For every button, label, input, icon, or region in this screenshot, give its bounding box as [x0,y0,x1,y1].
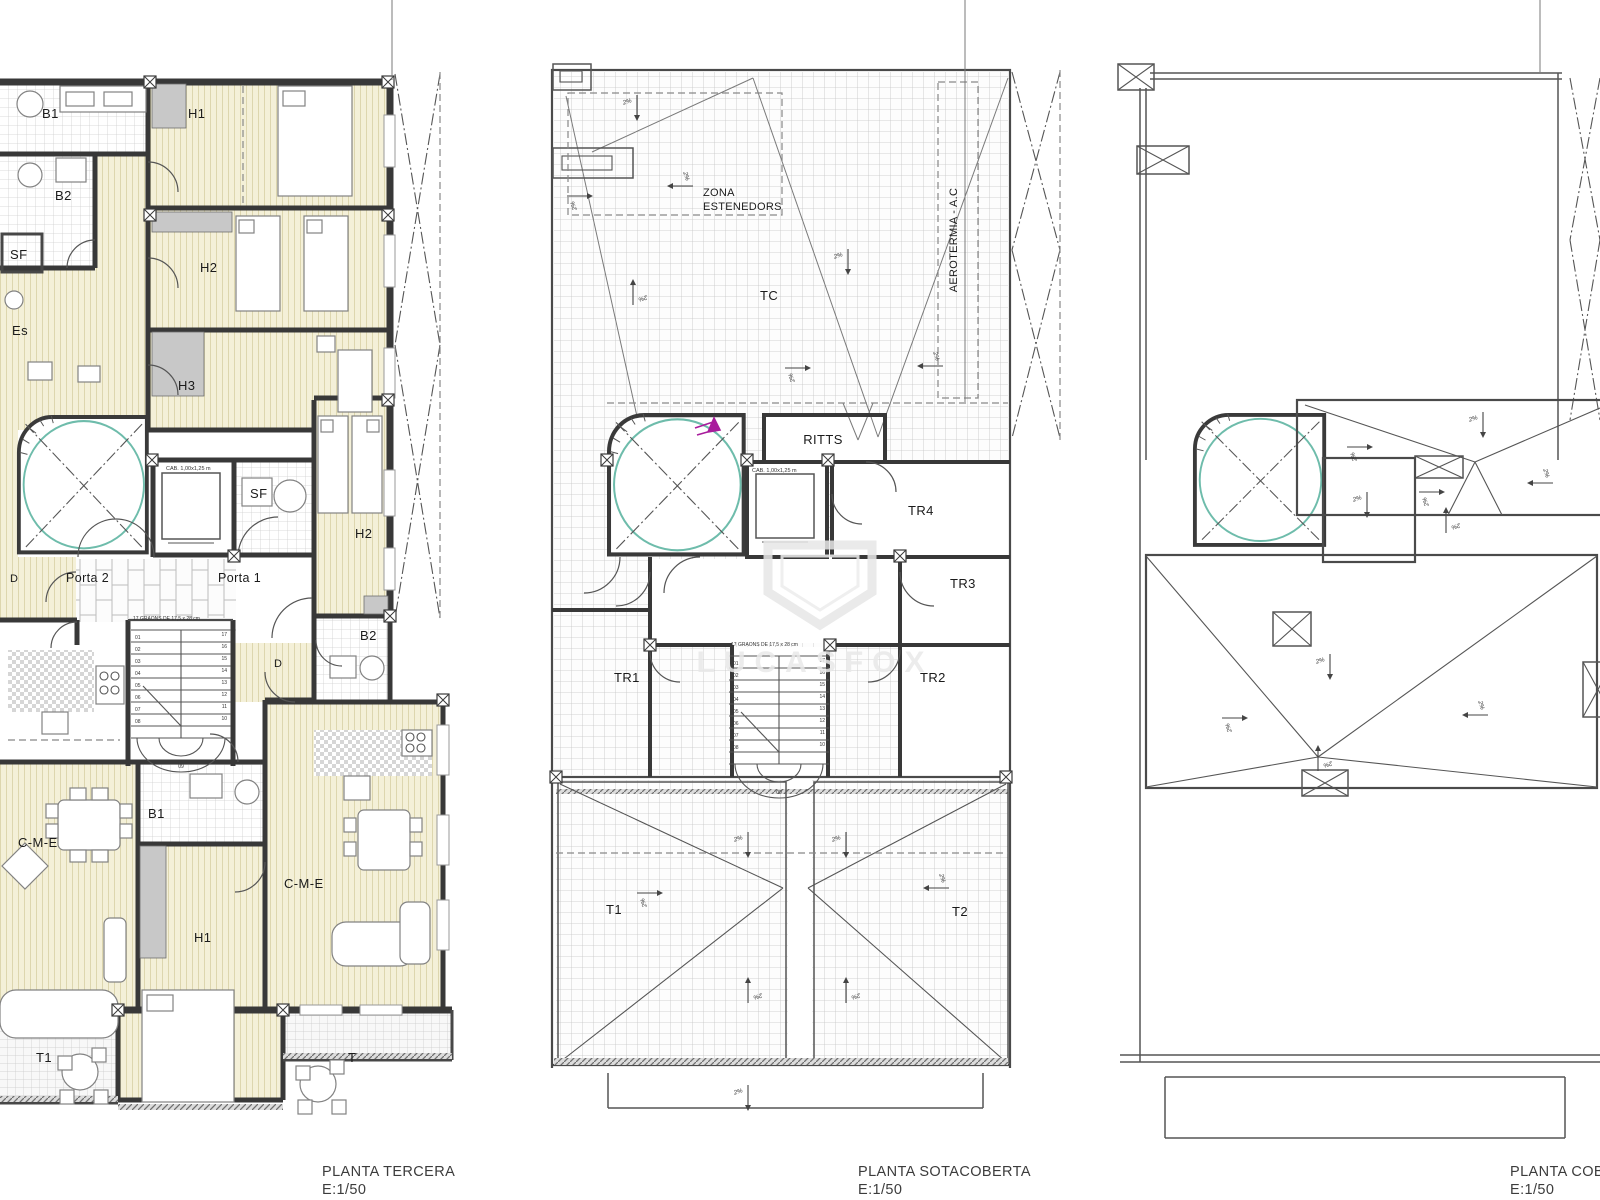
slope-arrow: 2% [1462,699,1488,718]
svg-text:01: 01 [135,635,141,641]
svg-text:12: 12 [221,692,227,698]
svg-text:05: 05 [733,709,739,715]
room-label-h2: H2 [200,260,217,275]
room-label-h3: H3 [178,378,195,393]
slope-arrow: 2% [1527,467,1553,486]
caption-coberta: PLANTA COBERTA E:1/50 [1510,1164,1600,1198]
watermark-text: LUCASFOX [697,646,934,679]
svg-text:16: 16 [221,644,227,650]
room-label-sf2: SF [250,486,267,501]
slope-arrow: 2% [1467,412,1486,438]
slope-arrow: 2% [1419,489,1445,508]
label-tr3: TR3 [950,576,976,591]
svg-text:2%: 2% [1421,496,1431,508]
label-tr4: TR4 [908,503,934,518]
svg-text:10: 10 [221,716,227,722]
room-label-es: Es [12,323,28,338]
roof-shaft [1323,458,1415,562]
svg-text:05: 05 [135,683,141,689]
svg-text:2%: 2% [1224,722,1234,734]
svg-text:08: 08 [733,745,739,751]
caption-scale: E:1/50 [858,1182,902,1198]
room-label-b1b: B1 [148,806,165,821]
svg-text:15: 15 [221,656,227,662]
svg-text:07: 07 [135,707,141,713]
svg-text:06: 06 [135,695,141,701]
elevator-cab-label: CAB. 1,00x1,25 m [166,466,211,472]
svg-text:14: 14 [221,668,227,674]
caption-tercera: PLANTA TERCERA E:1/50 [322,1164,455,1198]
label-tr1: TR1 [614,670,640,685]
caption-scale: E:1/50 [322,1182,366,1198]
room-label-d1: D [10,573,18,585]
elevator-cab-label: CAB. 1,00x1,25 m [752,468,797,474]
room-label-sf: SF [10,247,27,262]
room-label-t1: T1 [36,1050,52,1065]
svg-text:2%: 2% [1450,521,1462,531]
label-t1: T1 [606,902,622,917]
svg-text:03: 03 [135,659,141,665]
patio-courtyard [609,414,744,554]
chimney-xbox [1118,64,1189,174]
svg-text:02: 02 [135,647,141,653]
room-label-h1b: H1 [194,930,211,945]
slope-arrow: 2% [1222,715,1248,734]
svg-text:08: 08 [135,719,141,725]
svg-text:2%: 2% [1541,467,1551,479]
room-label-porta1: Porta 1 [218,571,261,585]
svg-text:10: 10 [819,742,825,748]
svg-text:15: 15 [819,682,825,688]
plan-tercera: CAB. 1,00x1,25 m [0,72,452,1114]
caption-title: PLANTA COBERTA [1510,1164,1600,1180]
patio-courtyard [19,416,147,552]
room-label-d2: D [274,658,282,670]
room-label-cme1: C-M-E [18,835,58,850]
svg-text:2%: 2% [1467,414,1479,424]
svg-text:09: 09 [178,764,184,770]
svg-text:17: 17 [221,632,227,638]
svg-text:2%: 2% [1322,759,1334,769]
slope-arrow: 2% [1347,444,1373,463]
caption-sotacoberta: PLANTA SOTACOBERTA E:1/50 [858,1164,1031,1198]
svg-text:2%: 2% [1351,494,1363,504]
room-label-b2b: B2 [360,628,377,643]
slope-arrow: 2% [732,1085,751,1111]
architectural-plan-sheet: CAB. 1,00x1,25 m [0,0,1600,1200]
svg-text:13: 13 [819,706,825,712]
floor-plans-drawing: CAB. 1,00x1,25 m [0,0,1600,1200]
slope-arrow: 2% [1443,507,1462,533]
caption-scale: E:1/50 [1510,1182,1554,1198]
svg-text:2%: 2% [732,1087,744,1097]
svg-text:2%: 2% [1349,451,1359,463]
svg-text:17 GRAONS DE 17,5 x 28 cm: 17 GRAONS DE 17,5 x 28 cm [133,616,200,622]
svg-text:12: 12 [819,718,825,724]
svg-text:13: 13 [221,680,227,686]
label-t2: T2 [952,904,968,919]
plan-coberta [1118,64,1600,1138]
room-label-cme2: C-M-E [284,876,324,891]
room-label-h1: H1 [188,106,205,121]
svg-text:14: 14 [819,694,825,700]
svg-text:06: 06 [733,721,739,727]
slope-arrow: 2% [1314,654,1333,680]
svg-text:03: 03 [733,685,739,691]
caption-title: PLANTA SOTACOBERTA [858,1164,1031,1180]
room-label-b2: B2 [55,188,72,203]
room-label-porta2: Porta 2 [66,571,109,585]
svg-text:11: 11 [820,730,825,736]
svg-text:2%: 2% [1314,656,1326,666]
svg-text:04: 04 [733,697,739,703]
label-tc: TC [760,288,778,303]
svg-text:11: 11 [222,704,227,710]
plan-sotacoberta: CAB. 1,00x1,25 m ZONA ESTENEDORS TC AERO… [550,64,1060,1108]
room-label-b1: B1 [42,106,59,121]
caption-title: PLANTA TERCERA [322,1164,455,1180]
label-estenedors: ESTENEDORS [703,201,782,213]
label-ritts: RITTS [803,432,843,447]
svg-text:09: 09 [776,790,782,796]
elevator: CAB. 1,00x1,25 m [162,466,220,543]
room-label-t: T [348,1050,356,1065]
label-zona: ZONA [703,187,735,199]
room-label-h2b: H2 [355,526,372,541]
svg-text:04: 04 [135,671,141,677]
label-aerotermia: AEROTERMIA - A.C [948,188,960,292]
svg-text:2%: 2% [1476,699,1486,711]
svg-text:07: 07 [733,733,739,739]
patio-courtyard [1195,414,1324,545]
